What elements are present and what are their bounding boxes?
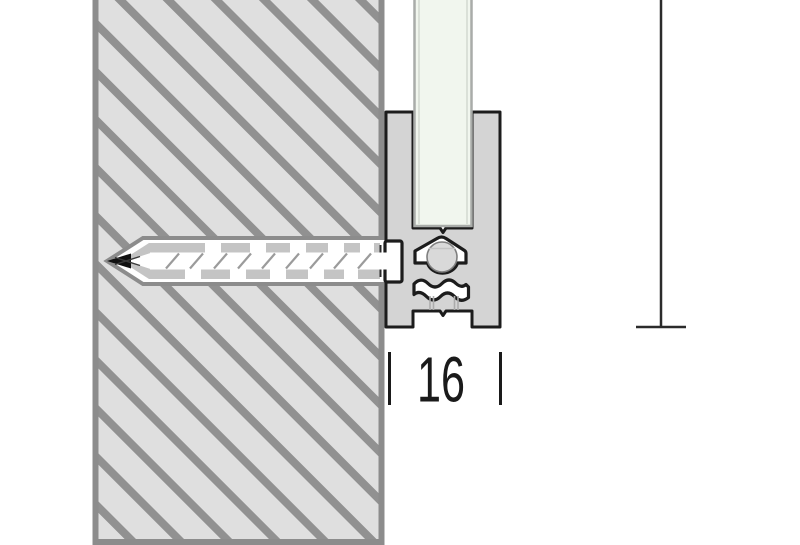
width-dimension: 16 — [390, 344, 501, 416]
screw-head — [427, 242, 457, 272]
technical-drawing-canvas: 16 — [0, 0, 800, 545]
glass-body — [415, 0, 472, 226]
profile-cross-section-drawing: 16 — [0, 0, 800, 545]
glass-panel — [415, 0, 472, 226]
width-dimension-value: 16 — [417, 344, 465, 416]
height-dimension-line — [636, 0, 686, 327]
